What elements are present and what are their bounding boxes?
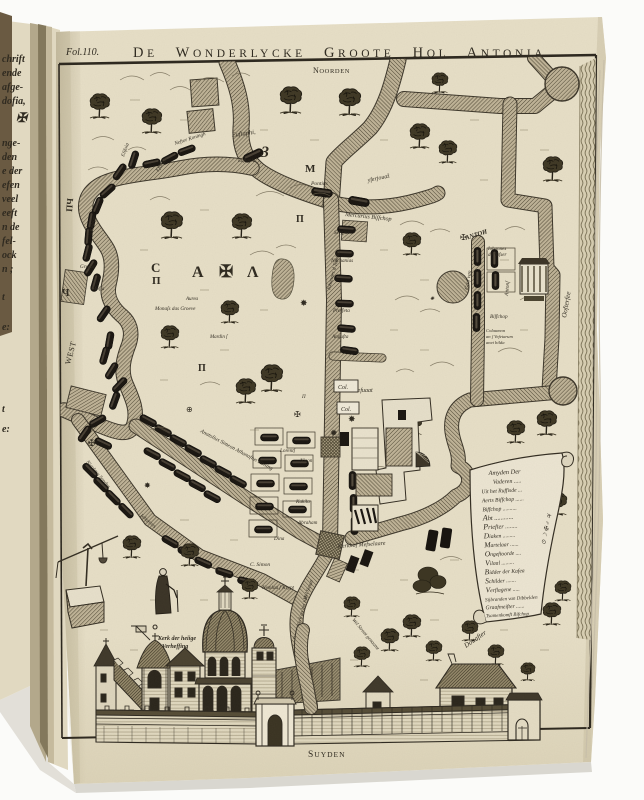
svg-text:veel: veel (2, 194, 18, 205)
svg-text:n ;: n ; (2, 264, 13, 275)
svg-text:e:: e: (2, 424, 10, 435)
svg-text:den: den (2, 152, 17, 163)
svg-text:eeft: eeft (2, 208, 18, 219)
svg-text:fel-: fel- (2, 236, 16, 247)
svg-text:afge-: afge- (2, 82, 23, 93)
svg-text:e:: e: (2, 322, 10, 333)
svg-text:ock: ock (2, 250, 16, 261)
svg-text:chrift: chrift (2, 54, 26, 65)
svg-text:n de: n de (2, 222, 20, 233)
svg-text:dofia,: dofia, (2, 96, 26, 107)
svg-text:nge-: nge- (2, 138, 20, 149)
svg-text:ende: ende (2, 68, 22, 79)
svg-text:e der: e der (2, 166, 22, 177)
svg-text:efen: efen (2, 180, 20, 191)
